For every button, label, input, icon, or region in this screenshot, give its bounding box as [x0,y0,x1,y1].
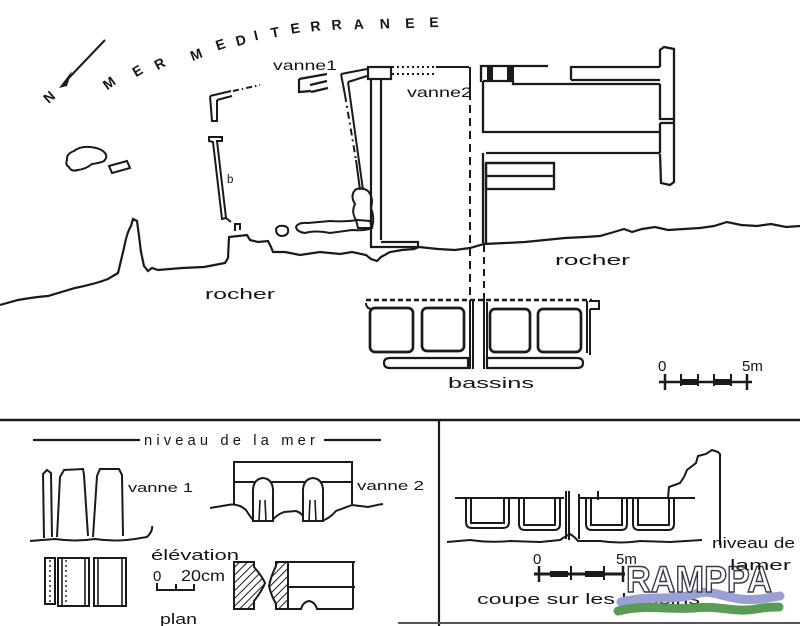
svg-text:plan: plan [160,611,197,626]
svg-text:niveau de: niveau de [712,535,795,552]
svg-text:vanne 2: vanne 2 [357,478,424,493]
svg-text:R: R [331,16,343,33]
svg-text:N: N [379,15,390,32]
svg-text:niveau de la mer: niveau de la mer [144,432,319,449]
svg-text:E: E [429,14,439,30]
svg-text:A: A [353,16,364,33]
svg-text:rocher: rocher [205,286,275,303]
svg-text:vanne1: vanne1 [273,57,337,73]
svg-text:0: 0 [658,358,666,375]
svg-text:5m: 5m [742,358,763,375]
svg-text:0: 0 [153,568,161,585]
svg-text:vanne2: vanne2 [407,84,472,100]
svg-text:E: E [405,15,415,31]
svg-text:bassins: bassins [448,375,534,392]
svg-text:élévation: élévation [151,547,239,564]
svg-text:lamer: lamer [730,557,791,574]
svg-text:20cm: 20cm [181,568,225,585]
svg-text:rocher: rocher [555,252,630,269]
svg-text:vanne 1: vanne 1 [128,480,193,495]
svg-text:0: 0 [533,551,541,568]
svg-text:R: R [309,17,321,34]
svg-text:b: b [227,174,233,186]
